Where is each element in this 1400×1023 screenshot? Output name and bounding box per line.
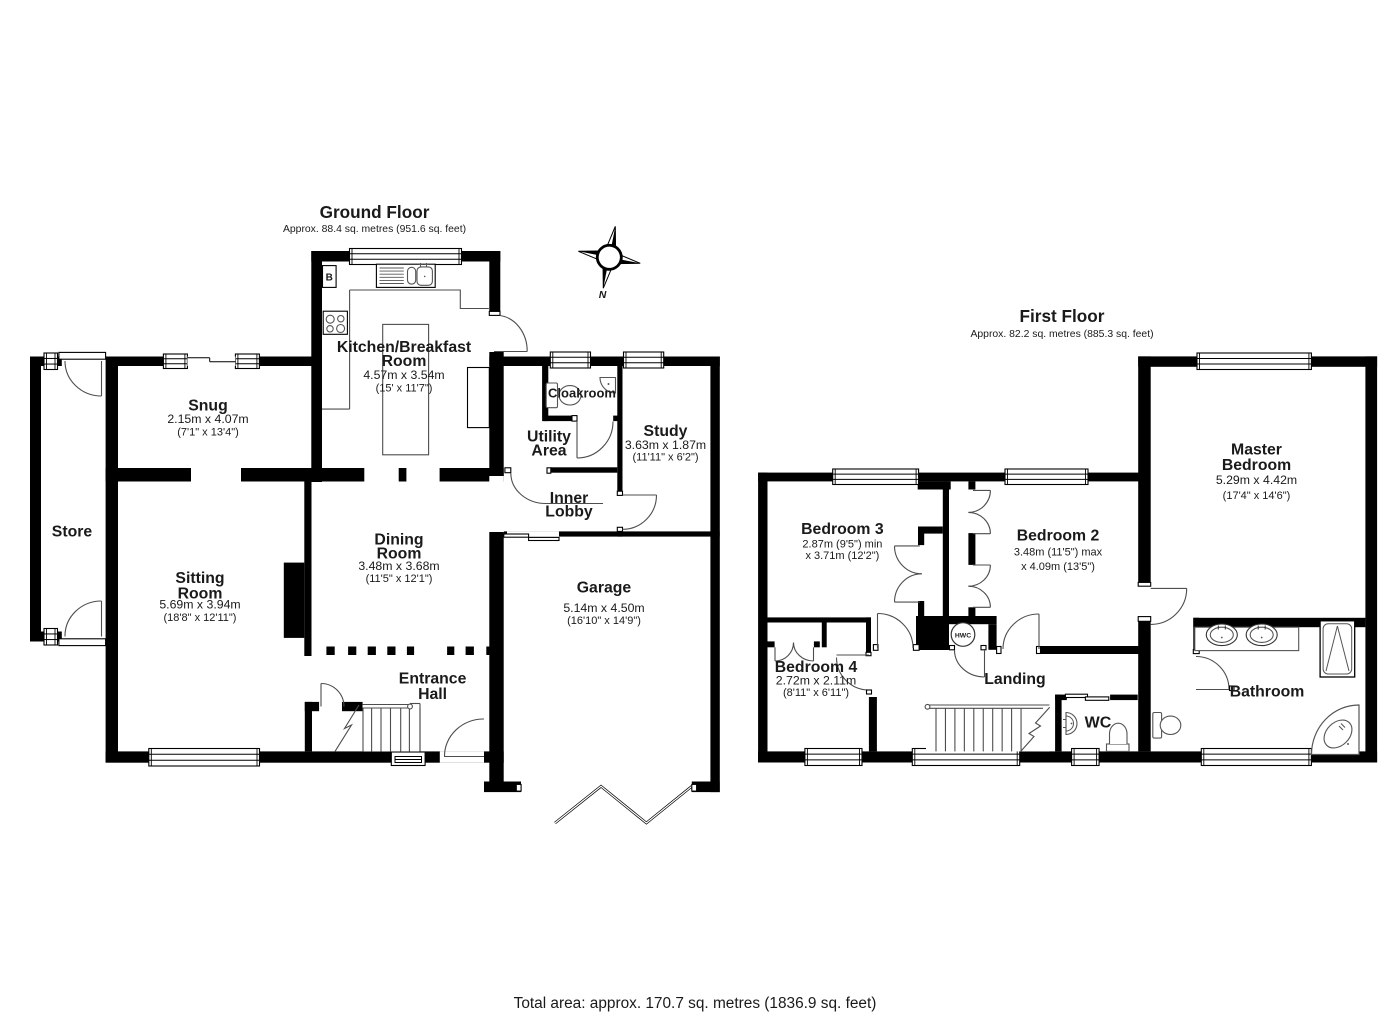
svg-text:Bedroom 2: Bedroom 2	[1017, 528, 1100, 545]
svg-text:Hall: Hall	[418, 686, 447, 703]
svg-text:WC: WC	[1085, 715, 1112, 732]
svg-text:2.72m x 2.11m: 2.72m x 2.11m	[776, 674, 856, 688]
svg-text:B: B	[326, 273, 333, 284]
svg-text:Approx. 88.4 sq. metres (951.6: Approx. 88.4 sq. metres (951.6 sq. feet)	[283, 224, 466, 235]
svg-text:N: N	[599, 289, 607, 301]
svg-text:Bathroom: Bathroom	[1230, 684, 1305, 701]
svg-text:Store: Store	[52, 524, 93, 541]
svg-text:5.29m x 4.42m: 5.29m x 4.42m	[1216, 473, 1297, 487]
svg-text:Landing: Landing	[984, 671, 1045, 688]
svg-text:x 3.71m (12'2"): x 3.71m (12'2")	[805, 550, 879, 562]
svg-text:(8'11" x 6'11"): (8'11" x 6'11")	[783, 687, 849, 699]
svg-text:Bedroom: Bedroom	[1222, 457, 1291, 474]
svg-text:3.48m (11'5") max: 3.48m (11'5") max	[1014, 547, 1103, 559]
svg-text:(7'1" x 13'4"): (7'1" x 13'4")	[177, 426, 239, 438]
svg-text:(17'4" x 14'6"): (17'4" x 14'6")	[1223, 490, 1291, 502]
svg-text:Bedroom 3: Bedroom 3	[801, 521, 884, 538]
svg-text:First Floor: First Floor	[1020, 306, 1105, 326]
svg-text:(16'10" x 14'9"): (16'10" x 14'9")	[567, 615, 641, 627]
svg-text:5.69m x 3.94m: 5.69m x 3.94m	[159, 598, 240, 612]
svg-text:(11'5" x 12'1"): (11'5" x 12'1")	[366, 573, 433, 585]
svg-text:Lobby: Lobby	[545, 504, 593, 521]
svg-text:(11'11" x 6'2"): (11'11" x 6'2")	[632, 452, 698, 464]
svg-text:3.48m x 3.68m: 3.48m x 3.68m	[358, 559, 439, 573]
svg-text:2.15m x 4.07m: 2.15m x 4.07m	[167, 412, 248, 426]
svg-text:(18'8" x 12'11"): (18'8" x 12'11")	[164, 612, 237, 624]
svg-text:Garage: Garage	[577, 580, 632, 597]
svg-text:Sitting: Sitting	[175, 570, 224, 587]
svg-text:Entrance: Entrance	[399, 670, 467, 687]
svg-text:x 4.09m (13'5"): x 4.09m (13'5")	[1021, 561, 1095, 573]
svg-text:4.57m x 3.54m: 4.57m x 3.54m	[363, 368, 444, 382]
svg-text:HWC: HWC	[955, 632, 971, 639]
svg-text:(15' x 11'7"): (15' x 11'7")	[376, 383, 433, 395]
svg-text:2.87m (9'5") min: 2.87m (9'5") min	[802, 539, 882, 551]
svg-text:Approx. 82.2 sq. metres (885.3: Approx. 82.2 sq. metres (885.3 sq. feet)	[970, 329, 1153, 340]
svg-text:Total area: approx. 170.7 sq.: Total area: approx. 170.7 sq. metres (18…	[514, 995, 877, 1012]
svg-text:Area: Area	[531, 443, 566, 460]
svg-text:5.14m x 4.50m: 5.14m x 4.50m	[563, 601, 644, 615]
svg-text:Ground Floor: Ground Floor	[320, 202, 430, 222]
svg-text:3.63m x 1.87m: 3.63m x 1.87m	[625, 438, 706, 452]
svg-text:Cloakroom: Cloakroom	[548, 386, 616, 401]
